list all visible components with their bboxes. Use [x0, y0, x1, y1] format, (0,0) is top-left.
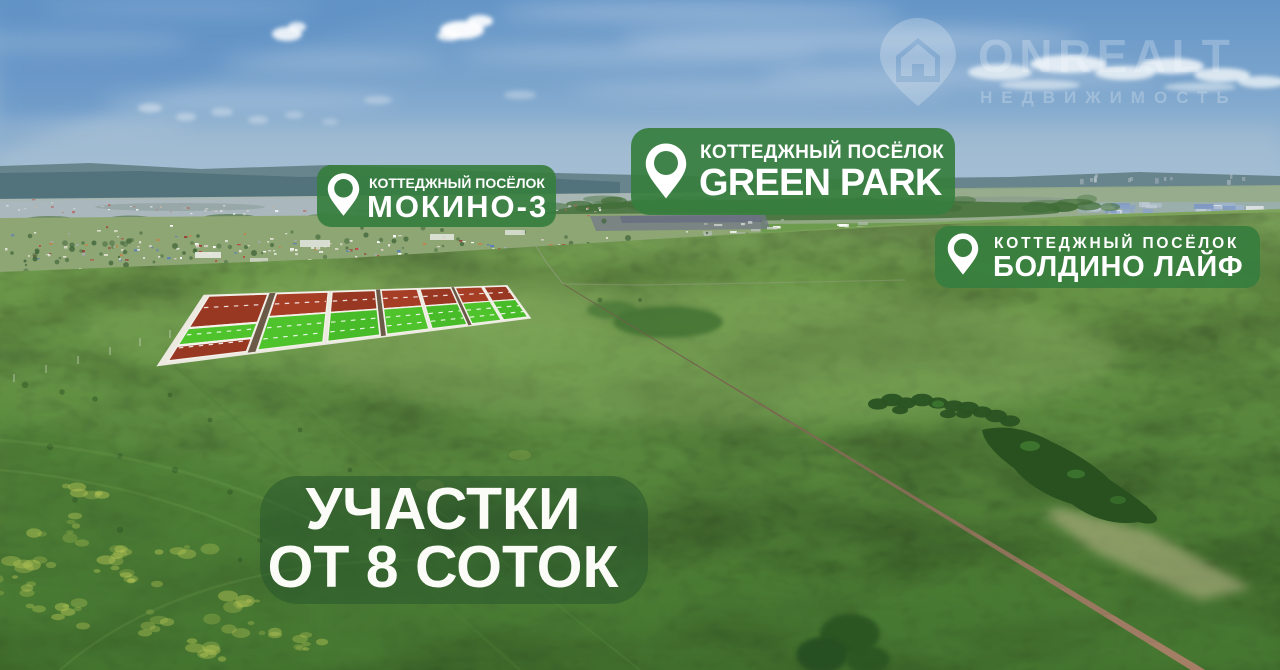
- svg-text:НЕДВИЖИМОСТЬ: НЕДВИЖИМОСТЬ: [980, 88, 1238, 107]
- svg-text:ONREALT: ONREALT: [978, 30, 1235, 82]
